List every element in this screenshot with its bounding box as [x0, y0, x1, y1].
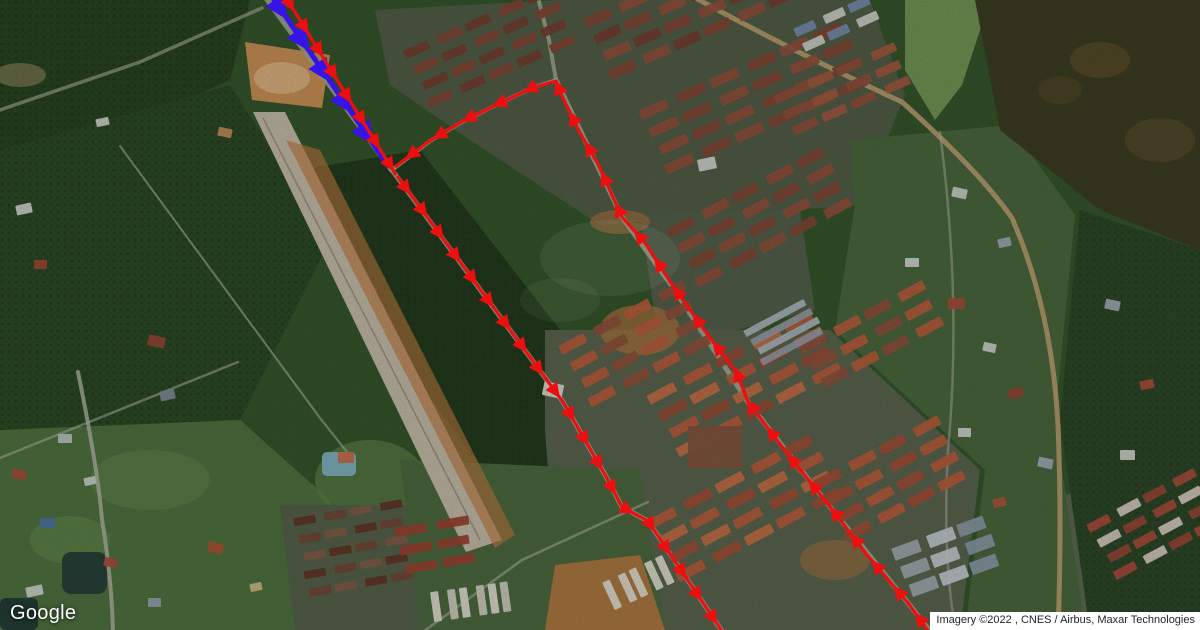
imagery-attribution: Imagery ©2022 , CNES / Airbus, Maxar Tec…: [930, 612, 1200, 630]
map-share-image: Google Imagery ©2022 , CNES / Airbus, Ma…: [0, 0, 1200, 630]
imagery-noise: [0, 0, 1200, 630]
satellite-map: [0, 0, 1200, 630]
google-logo: Google: [10, 602, 76, 625]
